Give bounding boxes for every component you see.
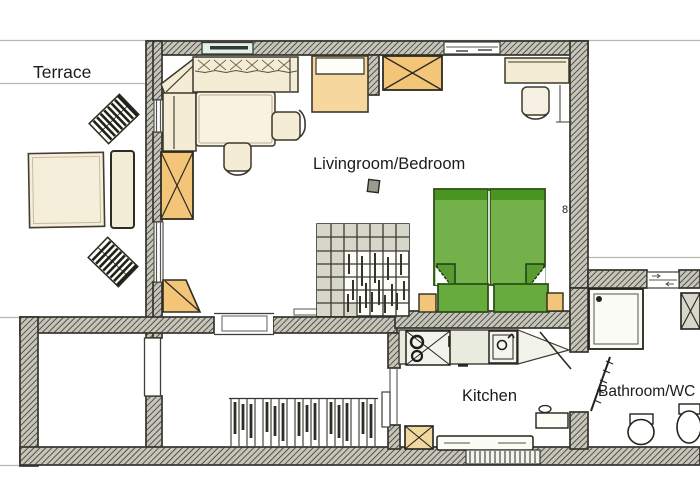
svg-text:Kitchen: Kitchen	[462, 387, 517, 405]
svg-text:Bathroom/WC: Bathroom/WC	[598, 383, 695, 400]
svg-text:Livingroom/Bedroom: Livingroom/Bedroom	[313, 155, 465, 173]
svg-text:Terrace: Terrace	[33, 62, 91, 82]
svg-text:8: 8	[562, 204, 568, 216]
